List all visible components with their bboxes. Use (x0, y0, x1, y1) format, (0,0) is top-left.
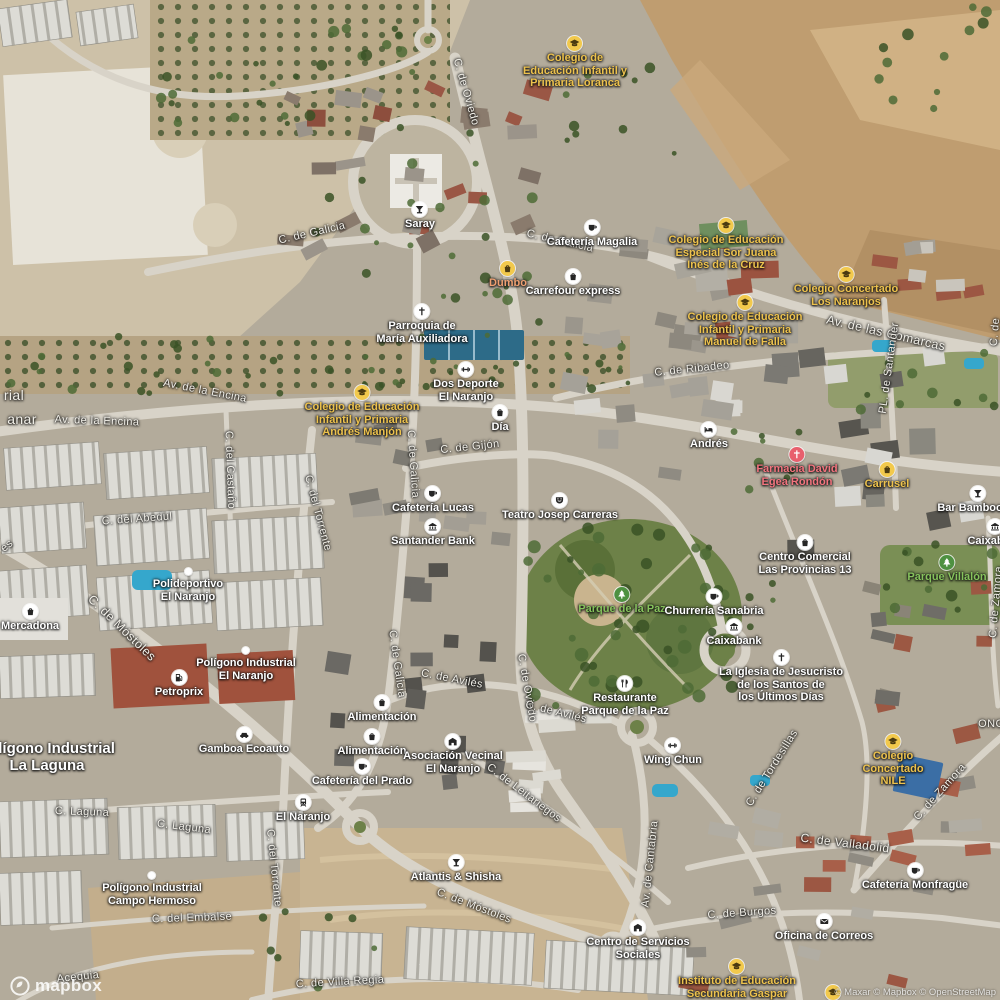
street-label: C. de Villa Regia (295, 974, 384, 991)
poi-label: Parroquia deMaría Auxiliadora (376, 304, 467, 345)
street-label: C. del Castaño (223, 431, 238, 510)
poi-label-text: El Naranjo (276, 811, 330, 824)
street-label: C. de Ribadeo (654, 359, 730, 379)
grocery-icon (364, 729, 379, 744)
poi-label-text: Colegio de Educación (669, 234, 784, 247)
shop-icon (879, 462, 894, 477)
mapbox-logo-text: mapbox (35, 976, 102, 996)
street-label: C. de Burgos (707, 905, 777, 922)
poi-label: Dumbo (489, 261, 527, 290)
poi-label: Instituto de EducaciónSecundaria Gaspar (678, 959, 796, 1000)
school-icon (568, 36, 583, 51)
poi-label-text: Parque de la Paz (581, 705, 668, 718)
street-label: C. de Oviedo (451, 57, 482, 127)
poi-label-text: El Naranjo (426, 763, 480, 776)
street-label: C. de Móstoles (85, 592, 159, 664)
poi-label-text: Churrería Sanabria (664, 605, 763, 618)
school-icon (355, 385, 370, 400)
poi-label-text: Dumbo (489, 277, 527, 290)
grocery-icon (374, 695, 389, 710)
poi-label-text: Egea Rondón (762, 476, 833, 489)
poi-label: Alimentación (347, 695, 416, 724)
street-label: C. de Galicia (277, 219, 346, 246)
street-label: C. del Embalse (152, 911, 233, 926)
poi-label: Polígono IndustrialLa Laguna (0, 740, 115, 774)
poi-label: Churrería Sanabria (664, 589, 763, 618)
label-layer: C. de OviedoC. de GaliciaC. de GaliciaAv… (0, 0, 1000, 1000)
street-label: C. de (988, 317, 1000, 346)
poi-label: Colegio deEducación Infantil yPrimaria L… (523, 36, 627, 90)
poi-label-text: Cafetería Lucas (392, 502, 474, 515)
poi-label: Teatro Josep Carreras (502, 493, 618, 522)
street-label: C. del Torrente (264, 829, 284, 908)
map-attribution[interactable]: © Maxar © Mapbox © OpenStreetMap (835, 987, 996, 998)
poi-label: Oficina de Correos (775, 914, 873, 943)
restaurant-icon (618, 676, 633, 691)
poi-label: Cafetería Monfragüe (862, 863, 968, 892)
map-canvas[interactable]: C. de OviedoC. de GaliciaC. de GaliciaAv… (0, 0, 1000, 1000)
shop2-icon (797, 535, 812, 550)
rail-icon (296, 795, 311, 810)
poi-label-text: Especial Sor Juana (676, 247, 777, 260)
church-icon (774, 650, 789, 665)
bank-icon (727, 619, 742, 634)
theatre-icon (553, 493, 568, 508)
lodging-icon (702, 422, 717, 437)
poi-label: Centro ComercialLas Provincias 13 (759, 535, 852, 576)
poi-label-text: Parque de la Paz (578, 603, 665, 616)
poi-label-text: El Naranjo (439, 391, 493, 404)
poi-label-text: Restaurante (593, 692, 657, 705)
poi-label-text: Carrusel (865, 478, 910, 491)
street-label: es (0, 537, 16, 554)
poi-label-text: Colegio (873, 750, 913, 763)
poi-label: RestauranteParque de la Paz (581, 676, 668, 717)
poi-label-text: Mercadona (1, 620, 59, 633)
grocery-icon (493, 405, 508, 420)
school-icon (838, 267, 853, 282)
poi-label-text: Cafetería del Prado (312, 775, 412, 788)
poi-label: La Iglesia de Jesucristode los Santos de… (719, 650, 843, 704)
car-icon (237, 727, 252, 742)
park-icon (615, 587, 630, 602)
poi-label-text: Alimentación (347, 711, 416, 724)
poi-label-text: Atlantis & Shisha (411, 871, 501, 884)
street-label: C. del Torrente (302, 474, 334, 552)
poi-label-text: Las Provincias 13 (759, 564, 852, 577)
poi-label: Caixabank (967, 519, 1000, 548)
poi-label-text: Colegio de (547, 52, 603, 65)
poi-label-text: Manuel de Falla (704, 336, 786, 349)
poi-label: Carrusel (865, 462, 910, 491)
poi-label: Caixabank (706, 619, 761, 648)
poi-label-text: Andrés (690, 438, 728, 451)
poi-label: PolideportivoEl Naranjo (153, 568, 223, 603)
poi-label-text: Andrés Manjón (322, 426, 401, 439)
street-label: C. del Abedul (101, 511, 172, 528)
dot-icon (148, 872, 155, 879)
poi-label: Carrefour express (526, 269, 621, 298)
poi-label-text: La Laguna (9, 757, 84, 774)
street-label: C. Laguna (156, 818, 211, 837)
street-label: C. Laguna (55, 805, 110, 819)
poi-label-text: Parroquia de (388, 320, 455, 333)
poi-label: Dos DeporteEl Naranjo (433, 362, 498, 403)
poi-label-text: Polideportivo (153, 578, 223, 591)
poi-label-text: Oficina de Correos (775, 930, 873, 943)
poi-label-text: Alimentación (337, 745, 406, 758)
bar-icon (970, 486, 985, 501)
poi-label: Colegio de EducaciónInfantil y PrimariaM… (688, 295, 803, 349)
poi-label-text: Polígono Industrial (196, 657, 296, 670)
poi-label: ColegioConcertadoNILE (862, 734, 923, 788)
poi-label: Cafetería del Prado (312, 759, 412, 788)
poi-label-text: Los Naranjos (811, 296, 881, 309)
poi-label-text: Centro Comercial (759, 551, 851, 564)
poi-label-text: Dos Deporte (433, 378, 498, 391)
poi-label: Saray (405, 202, 435, 231)
dot-icon (242, 647, 249, 654)
poi-label-text: Bar Bamboo Gr (937, 502, 1000, 515)
poi-label: Colegio ConcertadoLos Naranjos (794, 267, 899, 308)
poi-label: Colegio de EducaciónEspecial Sor JuanaIn… (669, 218, 784, 272)
poi-label-text: Wing Chun (644, 754, 702, 767)
grocery-icon (566, 269, 581, 284)
street-label: Av. de la Encina (54, 414, 139, 429)
poi-label: Andrés (690, 422, 728, 451)
street-label: C. de Galicia (386, 629, 407, 698)
poi-label-text: Gamboa Ecoauto (199, 743, 289, 756)
poi-label: Asociación VecinalEl Naranjo (403, 734, 503, 775)
poi-label-text: Educación Infantil y (523, 65, 627, 78)
cafe-icon (706, 589, 721, 604)
poi-label: Atlantis & Shisha (411, 855, 501, 884)
street-label: C. de Zamora (987, 566, 1000, 639)
poi-label-text: Campo Hermoso (108, 895, 196, 908)
poi-label-text: El Naranjo (219, 670, 273, 683)
grocery-icon (22, 604, 37, 619)
poi-label: Polígono IndustrialCampo Hermoso (102, 872, 202, 907)
poi-label: El Naranjo (276, 795, 330, 824)
mail-icon (816, 914, 831, 929)
school-icon (886, 734, 901, 749)
cafe-icon (584, 220, 599, 235)
street-label: C. de Valladolid (800, 831, 891, 856)
poi-label-text: de los Santos de (737, 679, 824, 692)
poi-label: Día (491, 405, 508, 434)
poi-label: Parque Villalón (907, 555, 986, 584)
poi-label: Polígono IndustrialEl Naranjo (196, 647, 296, 682)
fitness-icon (459, 362, 474, 377)
fitness-icon (665, 738, 680, 753)
street-label: C. de Tordesillas (744, 728, 801, 809)
poi-label-text: María Auxiliadora (376, 333, 467, 346)
poi-label: Parque de la Paz (578, 587, 665, 616)
poi-label-text: Concertado (862, 763, 923, 776)
school-icon (719, 218, 734, 233)
cafe-icon (426, 486, 441, 501)
street-label: Av. de la Encina (162, 377, 248, 405)
bar-icon (449, 855, 464, 870)
cafe-icon (907, 863, 922, 878)
pharmacy-icon (789, 447, 804, 462)
street-label: anar (7, 411, 37, 427)
poi-label-text: Polígono Industrial (0, 740, 115, 757)
poi-label-text: Cafetería Magalia (547, 236, 637, 249)
poi-label-text: Infantil y Primaria (699, 324, 791, 337)
poi-label: Cafetería Magalia (547, 220, 637, 249)
poi-label-text: Sociales (616, 949, 661, 962)
poi-label: Colegio de EducaciónInfantil y PrimariaA… (305, 385, 420, 439)
mapbox-logo-icon (10, 976, 30, 996)
poi-label: Farmacia DavidEgea Rondón (756, 447, 837, 488)
fuel-icon (171, 670, 186, 685)
dot-icon (185, 568, 192, 575)
poi-label-text: Colegio de Educación (305, 401, 420, 414)
poi-label-text: Petroprix (155, 686, 203, 699)
poi-label-text: Inés de la Cruz (687, 259, 765, 272)
poi-label-text: Secundaria Gaspar (687, 988, 787, 1000)
poi-label: Centro de ServiciosSociales (586, 920, 689, 961)
building-icon (630, 920, 645, 935)
poi-label-text: La Iglesia de Jesucristo (719, 666, 843, 679)
bar-icon (412, 202, 427, 217)
shop-icon (500, 261, 515, 276)
poi-label-text: Santander Bank (391, 535, 475, 548)
bank-icon (988, 519, 1000, 534)
poi-label-text: Polígono Industrial (102, 882, 202, 895)
poi-label-text: Primaria Loranca (530, 77, 620, 90)
mapbox-logo[interactable]: mapbox (10, 976, 102, 996)
poi-label-text: Infantil y Primaria (316, 414, 408, 427)
poi-label-text: NILE (880, 775, 905, 788)
school-icon (738, 295, 753, 310)
street-label: C. de Avilés (420, 667, 484, 691)
poi-label: Santander Bank (391, 519, 475, 548)
poi-label-text: Colegio de Educación (688, 311, 803, 324)
poi-label: Mercadona (1, 604, 59, 633)
park-icon (940, 555, 955, 570)
bank-icon (426, 519, 441, 534)
street-label: ONC (978, 718, 1000, 730)
poi-label: Wing Chun (644, 738, 702, 767)
poi-label-text: Instituto de Educación (678, 975, 796, 988)
poi-label-text: Parque Villalón (907, 571, 986, 584)
street-label: C. de Móstoles (435, 886, 513, 926)
poi-label-text: Saray (405, 218, 435, 231)
poi-label-text: Colegio Concertado (794, 283, 899, 296)
street-label: C. de Gijón (440, 438, 500, 456)
poi-label: Alimentación (337, 729, 406, 758)
poi-label: Gamboa Ecoauto (199, 727, 289, 756)
poi-label-text: Centro de Servicios (586, 936, 689, 949)
poi-label-text: El Naranjo (161, 591, 215, 604)
poi-label-text: los Últimos Días (738, 691, 824, 704)
poi-label-text: Farmacia David (756, 463, 837, 476)
poi-label-text: Caixabank (967, 535, 1000, 548)
poi-label-text: Teatro Josep Carreras (502, 509, 618, 522)
cafe-icon (354, 759, 369, 774)
poi-label-text: Caixabank (706, 635, 761, 648)
poi-label-text: Cafetería Monfragüe (862, 879, 968, 892)
poi-label: Bar Bamboo Gr (937, 486, 1000, 515)
building-icon (446, 734, 461, 749)
street-label: rial (4, 387, 24, 403)
poi-label: Cafetería Lucas (392, 486, 474, 515)
church-icon (414, 304, 429, 319)
street-label: Av. de Cantabria (639, 820, 660, 908)
poi-label-text: Día (491, 421, 508, 434)
school-icon (729, 959, 744, 974)
poi-label-text: Asociación Vecinal (403, 750, 503, 763)
poi-label-text: Carrefour express (526, 285, 621, 298)
